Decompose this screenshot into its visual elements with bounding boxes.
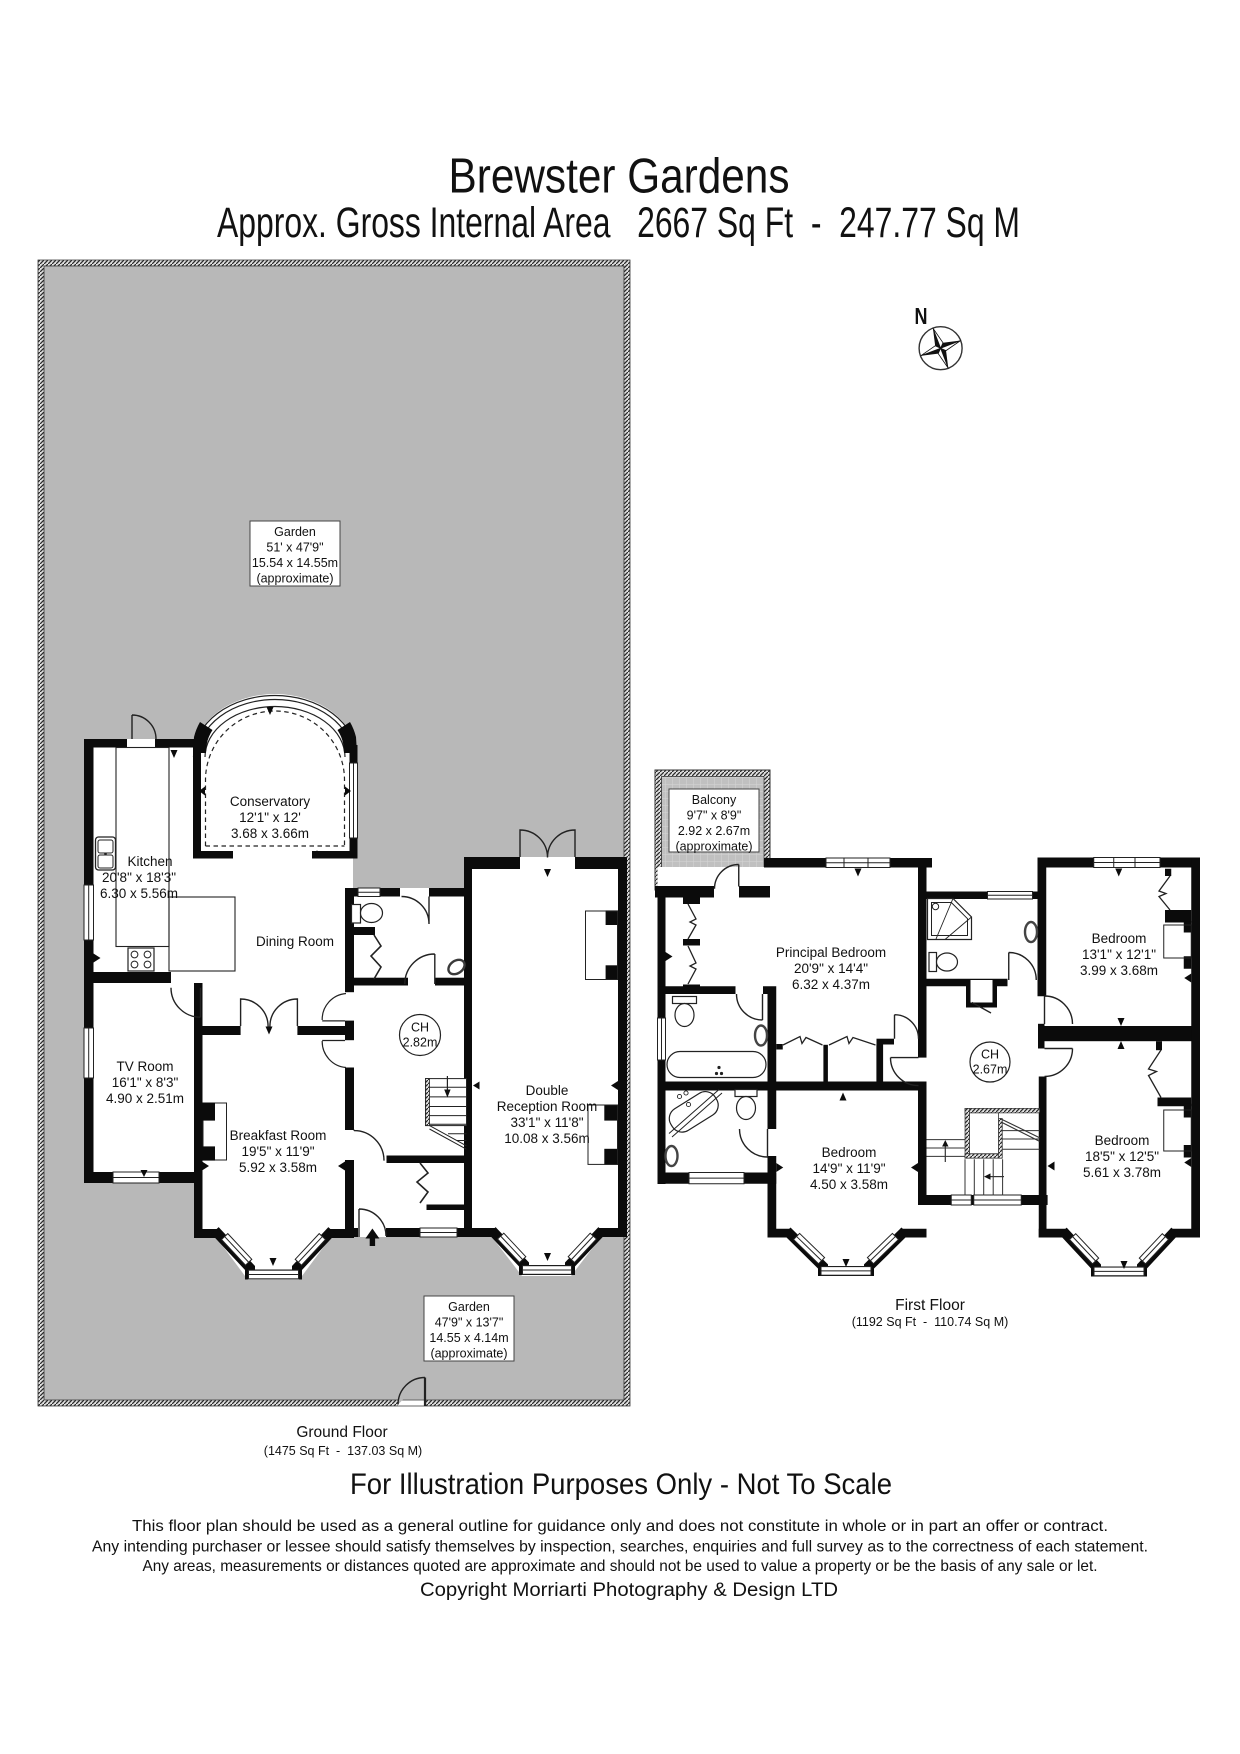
svg-text:Bedroom: Bedroom [1095, 1133, 1150, 1148]
svg-text:2.82m: 2.82m [403, 1036, 438, 1050]
svg-text:19'5" x 11'9": 19'5" x 11'9" [241, 1144, 314, 1159]
svg-text:This floor plan should be used: This floor plan should be used as a gene… [132, 1518, 1108, 1535]
svg-text:TV Room: TV Room [116, 1059, 173, 1074]
svg-text:13'1" x 12'1": 13'1" x 12'1" [1082, 947, 1156, 962]
svg-text:15.54 x 14.55m: 15.54 x 14.55m [252, 556, 338, 570]
svg-text:Balcony: Balcony [692, 793, 737, 807]
svg-text:Double: Double [526, 1083, 569, 1098]
svg-text:Any areas, measurements or dis: Any areas, measurements or distances quo… [143, 1558, 1098, 1575]
svg-text:Copyright Morriarti Photograph: Copyright Morriarti Photography & Design… [420, 1580, 838, 1601]
svg-text:3.68 x 3.66m: 3.68 x 3.66m [231, 826, 309, 841]
svg-text:9'7" x 8'9": 9'7" x 8'9" [687, 809, 742, 823]
svg-text:2.67m: 2.67m [973, 1063, 1008, 1077]
svg-text:First Floor: First Floor [895, 1297, 965, 1314]
svg-text:N: N [915, 303, 928, 329]
svg-text:Principal Bedroom: Principal Bedroom [776, 945, 886, 960]
svg-text:16'1" x 8'3": 16'1" x 8'3" [112, 1075, 179, 1090]
svg-text:Bedroom: Bedroom [1092, 931, 1147, 946]
svg-text:(approximate): (approximate) [430, 1347, 507, 1361]
svg-text:20'9" x 14'4": 20'9" x 14'4" [794, 961, 868, 976]
svg-text:5.61 x 3.78m: 5.61 x 3.78m [1083, 1165, 1161, 1180]
svg-text:51' x 47'9": 51' x 47'9" [266, 541, 323, 555]
svg-text:6.30 x 5.56m: 6.30 x 5.56m [100, 886, 178, 901]
svg-text:10.08 x 3.56m: 10.08 x 3.56m [504, 1131, 590, 1146]
svg-text:(approximate): (approximate) [256, 572, 333, 586]
svg-text:2.92 x 2.67m: 2.92 x 2.67m [678, 824, 750, 838]
svg-text:Approx. Gross Internal Area: Approx. Gross Internal Area 2667 Sq Ft -… [217, 199, 1020, 247]
svg-text:Conservatory: Conservatory [230, 794, 311, 809]
svg-text:14'9" x 11'9": 14'9" x 11'9" [812, 1161, 885, 1176]
svg-text:Garden: Garden [448, 1300, 490, 1314]
svg-text:20'8" x 18'3": 20'8" x 18'3" [102, 870, 176, 885]
svg-text:Garden: Garden [274, 525, 316, 539]
svg-text:(approximate): (approximate) [675, 840, 752, 854]
svg-text:18'5" x 12'5": 18'5" x 12'5" [1085, 1149, 1159, 1164]
svg-text:14.55 x 4.14m: 14.55 x 4.14m [429, 1331, 508, 1345]
svg-text:Dining Room: Dining Room [256, 934, 334, 949]
svg-text:CH: CH [981, 1048, 999, 1062]
svg-text:(1192 Sq Ft - 110.74 Sq M): (1192 Sq Ft - 110.74 Sq M) [852, 1315, 1009, 1329]
svg-text:Reception Room: Reception Room [497, 1099, 598, 1114]
svg-text:6.32 x 4.37m: 6.32 x 4.37m [792, 977, 870, 992]
svg-text:Kitchen: Kitchen [127, 854, 172, 869]
svg-text:Breakfast Room: Breakfast Room [230, 1128, 327, 1143]
svg-text:12'1" x 12': 12'1" x 12' [239, 810, 301, 825]
svg-text:4.90 x 2.51m: 4.90 x 2.51m [106, 1091, 184, 1106]
svg-text:33'1" x 11'8": 33'1" x 11'8" [510, 1115, 583, 1130]
svg-text:Ground Floor: Ground Floor [296, 1424, 387, 1441]
svg-text:5.92 x 3.58m: 5.92 x 3.58m [239, 1160, 317, 1175]
svg-text:CH: CH [411, 1021, 429, 1035]
svg-text:3.99 x 3.68m: 3.99 x 3.68m [1080, 963, 1158, 978]
svg-text:4.50 x 3.58m: 4.50 x 3.58m [810, 1177, 888, 1192]
svg-text:Brewster Gardens: Brewster Gardens [449, 150, 790, 204]
svg-text:Bedroom: Bedroom [822, 1145, 877, 1160]
svg-text:For Illustration Purposes Only: For Illustration Purposes Only - Not To … [350, 1468, 892, 1501]
svg-text:47'9" x 13'7": 47'9" x 13'7" [435, 1316, 504, 1330]
svg-text:(1475 Sq Ft - 137.03 Sq M): (1475 Sq Ft - 137.03 Sq M) [264, 1444, 422, 1458]
svg-text:Any intending purchaser or les: Any intending purchaser or lessee should… [92, 1539, 1148, 1556]
